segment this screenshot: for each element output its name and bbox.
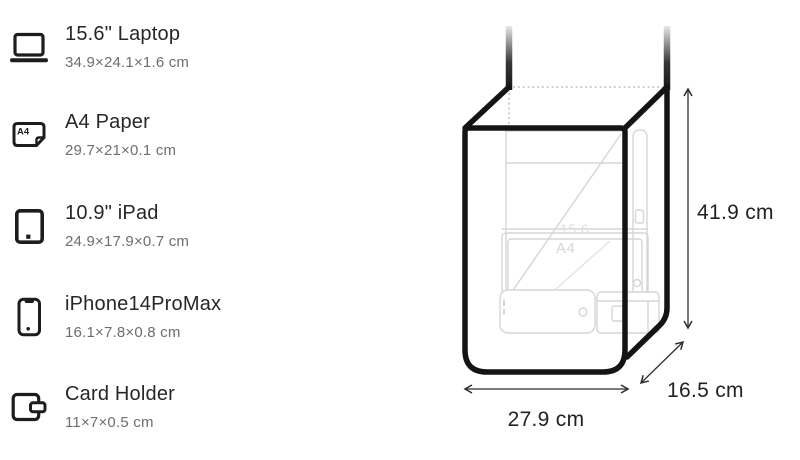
list-item-a4-paper: A4 A4 Paper 29.7×21×0.1 cm bbox=[10, 111, 176, 159]
laptop-icon bbox=[10, 32, 48, 63]
list-item-ipad: 10.9" iPad 24.9×17.9×0.7 cm bbox=[10, 202, 189, 250]
bag-capacity-panel: 15.6" Laptop 34.9×24.1×1.6 cm A4 A4 Pape… bbox=[0, 0, 800, 455]
a4-badge-label: A4 bbox=[17, 127, 30, 138]
depth-dimension-label: 16.5 cm bbox=[667, 379, 744, 402]
list-item-laptop: 15.6" Laptop 34.9×24.1×1.6 cm bbox=[10, 23, 189, 71]
bag-straps bbox=[509, 26, 667, 90]
bag-diagram: 15.6 A4 bbox=[440, 0, 800, 455]
ghost-items: 15.6 A4 bbox=[500, 130, 659, 333]
item-dimensions: 29.7×21×0.1 cm bbox=[65, 142, 176, 159]
ghost-a4-label: A4 bbox=[556, 240, 575, 257]
item-title: Card Holder bbox=[65, 383, 175, 406]
item-dimensions: 34.9×24.1×1.6 cm bbox=[65, 54, 189, 71]
width-dimension-label: 27.9 cm bbox=[508, 408, 585, 431]
item-dimensions: 24.9×17.9×0.7 cm bbox=[65, 233, 189, 250]
ipad-icon bbox=[10, 208, 48, 245]
a4-paper-icon: A4 bbox=[10, 121, 48, 149]
card-holder-icon bbox=[10, 392, 48, 422]
item-dimensions: 16.1×7.8×0.8 cm bbox=[65, 324, 221, 341]
list-item-card-holder: Card Holder 11×7×0.5 cm bbox=[10, 383, 175, 431]
item-dimensions: 11×7×0.5 cm bbox=[65, 414, 175, 431]
ghost-laptop-label: 15.6 bbox=[560, 221, 589, 237]
iphone-icon bbox=[10, 297, 48, 337]
ghost-iphone bbox=[500, 290, 595, 333]
item-title: A4 Paper bbox=[65, 111, 176, 134]
item-title: iPhone14ProMax bbox=[65, 293, 221, 316]
item-title: 10.9" iPad bbox=[65, 202, 189, 225]
item-title: 15.6" Laptop bbox=[65, 23, 189, 46]
height-dimension-label: 41.9 cm bbox=[697, 201, 774, 224]
ghost-card-holder bbox=[597, 292, 659, 333]
depth-arrow bbox=[641, 342, 683, 383]
list-item-iphone: iPhone14ProMax 16.1×7.8×0.8 cm bbox=[10, 293, 221, 341]
bag-wireframe: 15.6 A4 bbox=[440, 0, 800, 455]
